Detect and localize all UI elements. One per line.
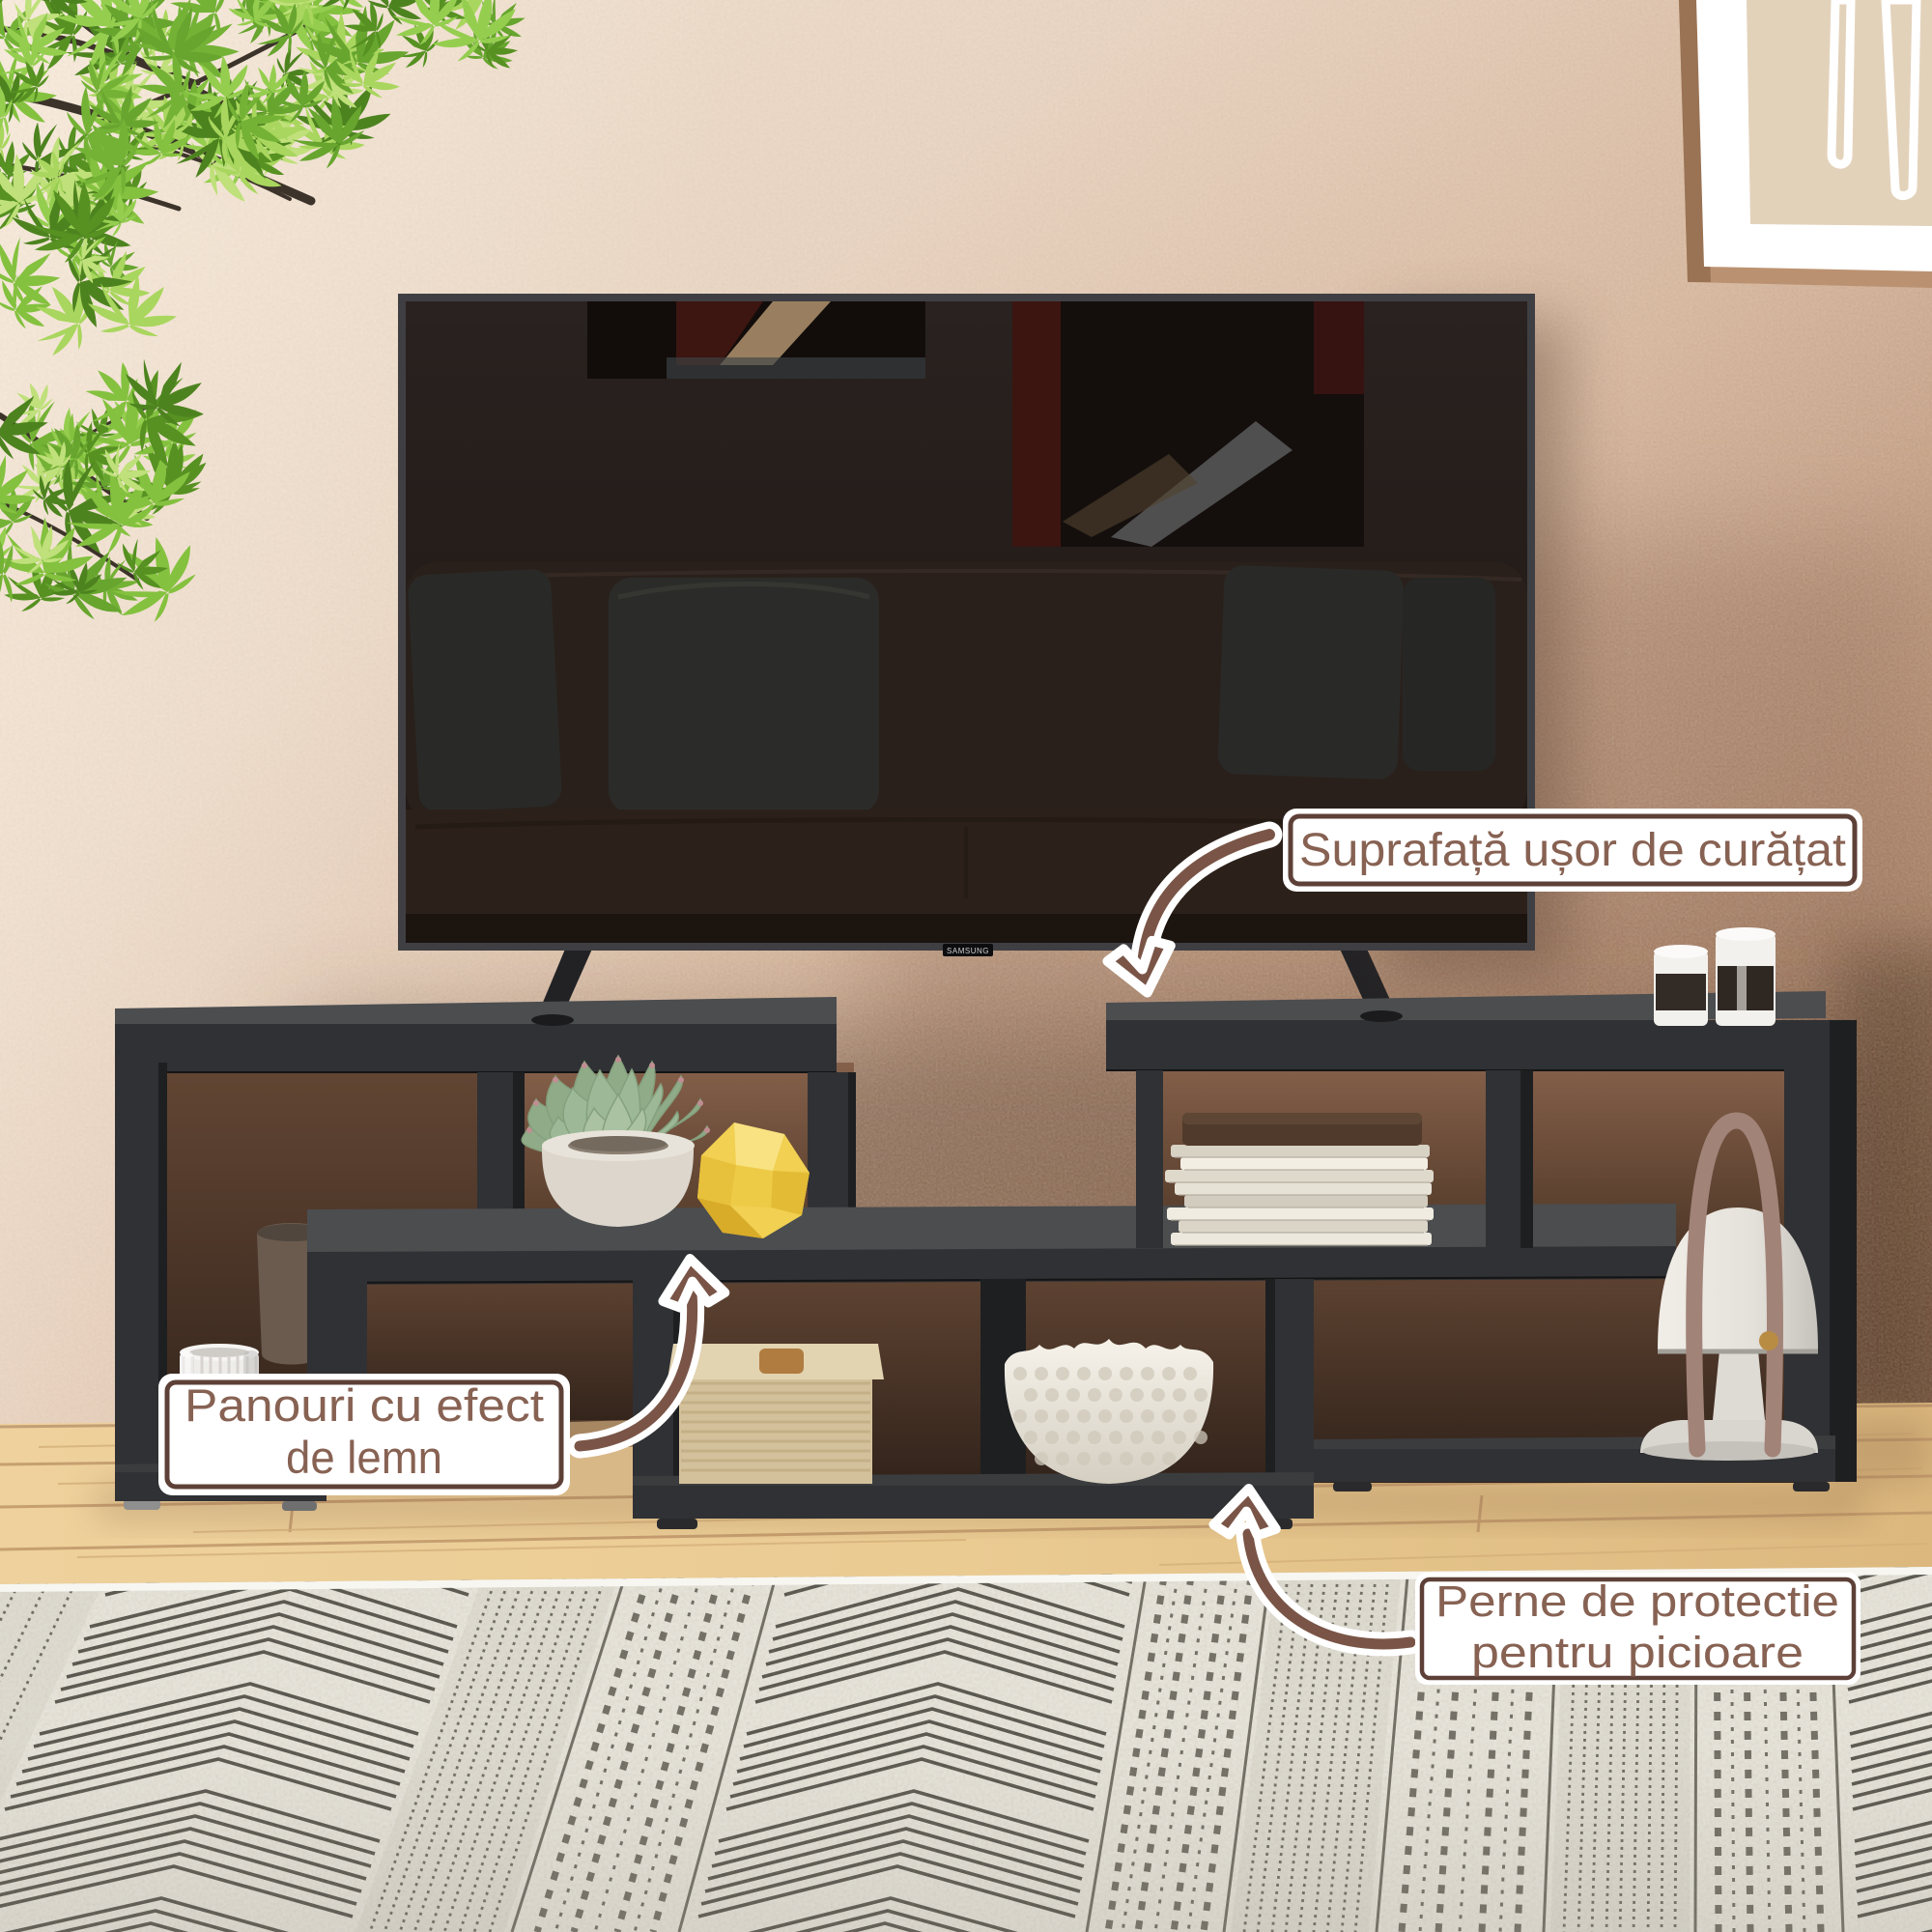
svg-text:de lemn: de lemn (286, 1432, 442, 1483)
svg-text:Suprafață ușor de curățat: Suprafață ușor de curățat (1299, 825, 1846, 876)
svg-text:SAMSUNG: SAMSUNG (947, 947, 989, 955)
svg-text:pentru picioare: pentru picioare (1471, 1628, 1804, 1677)
svg-text:Panouri cu efect: Panouri cu efect (185, 1379, 544, 1431)
svg-text:Perne de protectie: Perne de protectie (1435, 1577, 1839, 1626)
